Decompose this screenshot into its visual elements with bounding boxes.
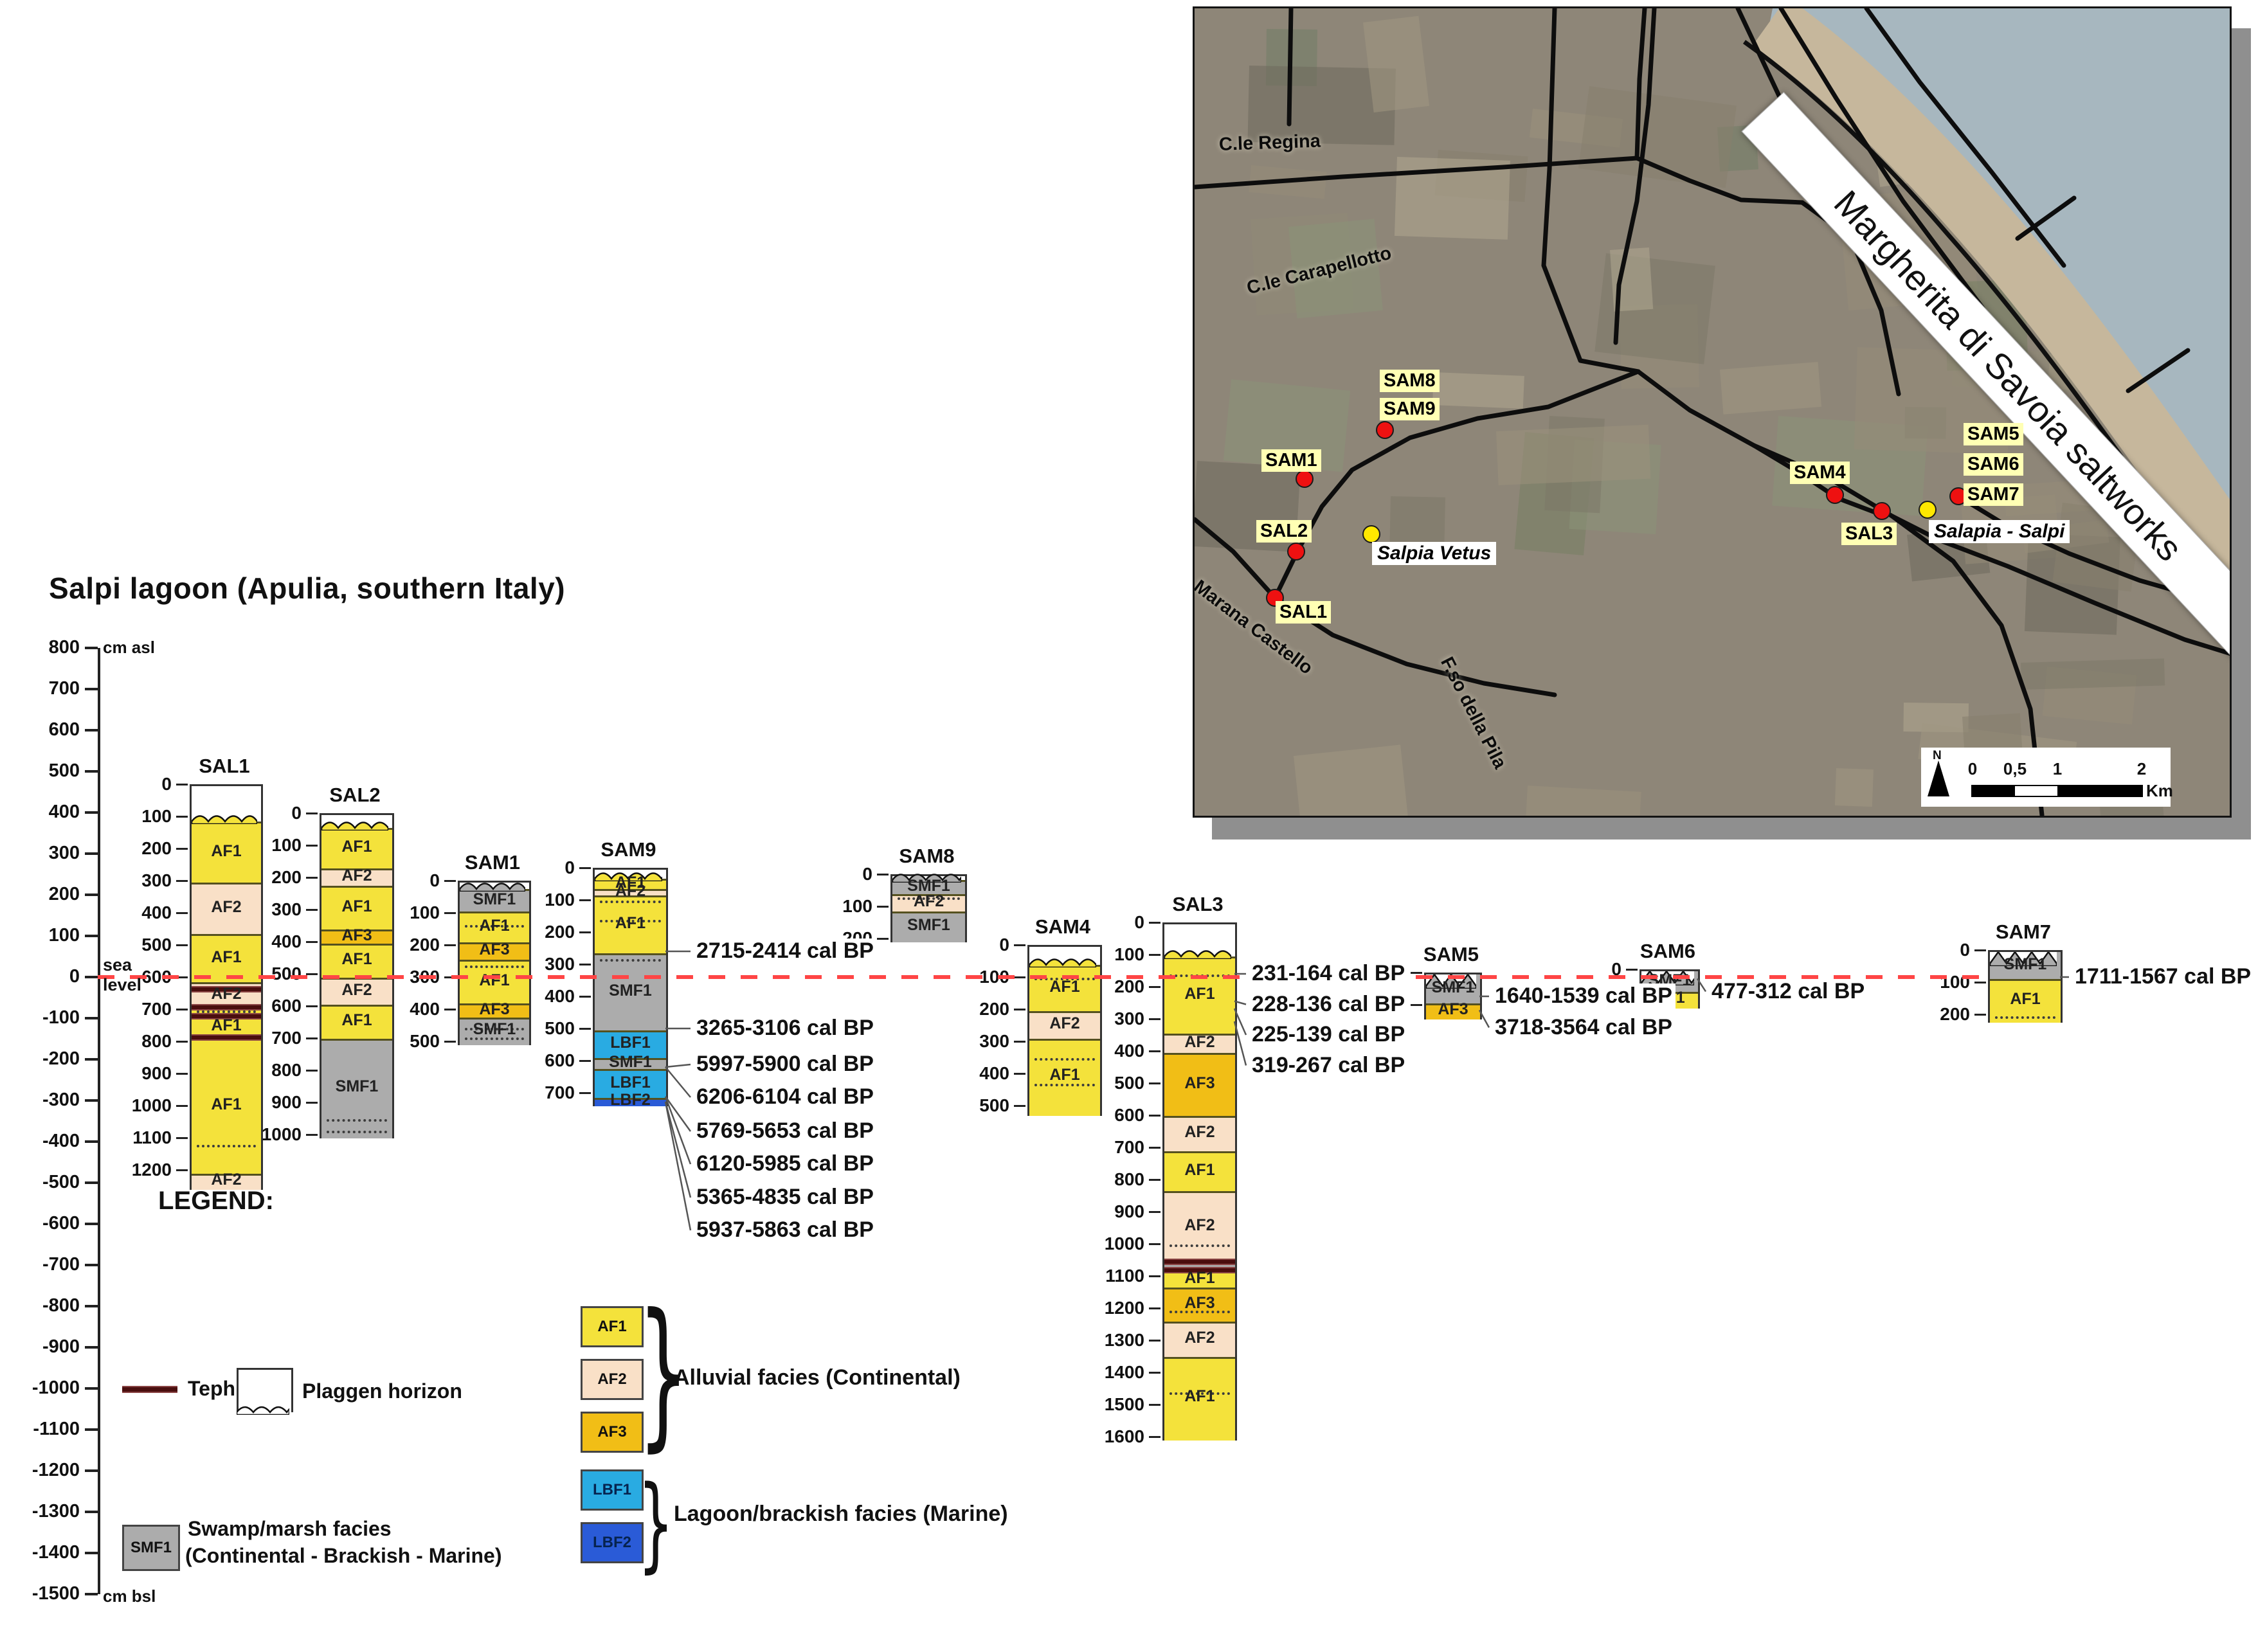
column-depth-tick [1149,1211,1161,1213]
axis-tick-label: -1500 [15,1583,80,1604]
facies-code-label: LBF2 [595,1091,666,1109]
column-depth-label: 600 [1087,1105,1144,1126]
column-depth-tick [1014,944,1025,946]
column-depth-label: 200 [1087,976,1144,997]
stratigraphy-figure: Salpi lagoon (Apulia, southern Italy) 80… [0,0,2258,1652]
axis-tick [85,893,98,896]
column-depth-tick [176,1041,188,1043]
axis-tick [85,1387,98,1390]
scalebar-number: 2 [2137,759,2146,779]
column-depth-label: 0 [815,864,872,884]
date-label: 6206-6104 cal BP [693,1084,877,1109]
date-label: 225-139 cal BP [1249,1022,1408,1047]
axis-tick-label: 300 [15,843,80,864]
figure-title: Salpi lagoon (Apulia, southern Italy) [49,571,565,606]
column-depth-label: 700 [517,1082,575,1103]
column-depth-tick [306,1070,318,1072]
legend-plaggen-swatch [237,1368,293,1412]
column-depth-label: 1500 [1087,1394,1144,1415]
date-label: 5937-5863 cal BP [693,1217,877,1243]
facies-code-label: AF2 [892,892,965,911]
axis-tick [85,1552,98,1554]
column-depth-label: 500 [382,1031,440,1052]
column-SAM7: SMF1AF1 [1988,950,2063,1023]
column-depth-label: 800 [1087,1169,1144,1190]
column-depth-tick [1149,1115,1161,1117]
column-depth-label: 1100 [1087,1266,1144,1286]
date-leader-line [665,1067,691,1097]
column-depth-tick [579,996,591,998]
map-label-SAM6: SAM6 [1964,453,2023,476]
column-depth-tick [579,899,591,901]
column-depth-label: 0 [952,935,1009,955]
facies-code-label: SMF1 [1426,978,1480,997]
axis-tick [85,811,98,814]
column-depth-label: 1400 [1087,1362,1144,1383]
column-depth-label: 500 [114,935,172,955]
axis-tick-label: -1100 [15,1419,80,1440]
date-label: 3718-3564 cal BP [1492,1015,1675,1040]
map-dot-SAM4 [1826,486,1844,504]
column-depth-label: 600 [244,996,302,1016]
axis-unit-bottom: cm bsl [103,1586,156,1606]
column-depth-label: 400 [952,1063,1009,1084]
dotted-line [327,1119,388,1122]
map-label-SAM1: SAM1 [1261,449,1321,472]
axis-tick [85,1223,98,1225]
column-depth-label: 900 [1087,1201,1144,1222]
legend-smf1-swatch: SMF1 [122,1525,180,1571]
scalebar-number: 1 [2053,759,2062,779]
column-depth-label: 1000 [114,1095,172,1116]
column-depth-label: 0 [382,870,440,891]
column-depth-label: 700 [1087,1137,1144,1158]
facies-code-label: AF3 [1426,1000,1480,1019]
axis-tick-label: -700 [15,1254,80,1275]
axis-tick-label: 700 [15,678,80,699]
axis-tick-label: -400 [15,1131,80,1152]
column-depth-tick [306,1134,318,1136]
column-depth-tick [1149,1404,1161,1406]
axis-tick-label: 600 [15,719,80,741]
facies-code-label: LBF1 [595,1034,666,1052]
facies-code-label: AF2 [1164,1216,1235,1235]
scalebar-unit: Km [2146,781,2173,801]
column-depth-label: 700 [244,1028,302,1048]
column-depth-tick [1149,1372,1161,1374]
facies-code-label: AF1 [1164,1269,1235,1288]
north-arrow [1928,760,1949,796]
axis-tick [85,1099,98,1102]
column-depth-tick [176,1009,188,1010]
column-depth-tick [1149,1050,1161,1052]
column-depth-tick [1014,1105,1025,1107]
column-depth-tick [1411,1004,1422,1006]
axis-tick-label: -1300 [15,1501,80,1522]
column-depth-label: 300 [244,899,302,920]
facies-code-label: AF2 [1164,1123,1235,1142]
column-depth-tick [1149,1147,1161,1149]
legend-lbf2-swatch: LBF2 [581,1522,644,1563]
map-dot-Salpia-Vetus [1362,525,1380,543]
column-header-SAL3: SAL3 [1134,893,1262,916]
column-depth-label: 600 [517,1050,575,1071]
column-depth-label: 1100 [114,1127,172,1148]
facies-code-label: AF1 [1164,985,1235,1003]
column-depth-tick [306,813,318,814]
column-depth-label: 0 [1912,940,1970,960]
axis-tick [85,935,98,937]
column-depth-tick [176,944,188,946]
column-depth-label: 200 [382,935,440,955]
column-depth-label: 500 [517,1018,575,1039]
date-leader-line [665,1097,691,1164]
column-header-SAM8: SAM8 [863,845,991,868]
axis-tick [85,1428,98,1431]
column-depth-tick [1626,969,1638,971]
column-depth-tick [306,909,318,911]
column-depth-tick [306,845,318,847]
facies-code-label: AF1 [1164,1387,1235,1406]
column-depth-label: 300 [114,870,172,891]
scalebar-seg-black-2 [2057,786,2142,796]
column-depth-label: 400 [114,902,172,923]
axis-tick [85,1469,98,1472]
facies-code-label: AF2 [595,882,666,901]
facies-code-label: SMF1 [321,1077,392,1096]
wavy-boundary [1164,947,1231,959]
column-depth-label: 100 [114,806,172,827]
column-depth-tick [1149,1179,1161,1181]
column-depth-tick [877,938,889,940]
dotted-line [1170,1244,1231,1247]
alluvial-brace: } [638,1279,689,1466]
column-depth-label: 500 [952,1095,1009,1116]
column-depth-tick [1014,1009,1025,1010]
sea-level-line [98,975,1988,979]
map-label-Salapia-Salpi: Salapia - Salpi [1929,520,2070,543]
facies-code-label: SMF1 [595,1053,666,1072]
legend-smf1-label-2: (Continental - Brackish - Marine) [185,1544,502,1568]
date-leader-line [665,1064,691,1067]
column-depth-tick [579,964,591,965]
column-depth-tick [176,880,188,882]
legend-af3-swatch: AF3 [581,1412,644,1453]
column-depth-tick [176,1073,188,1075]
legend-lbf1-swatch: LBF1 [581,1469,644,1511]
column-depth-tick [1149,986,1161,988]
facies-code-label: AF3 [1164,1294,1235,1313]
column-depth-label: 0 [244,803,302,823]
column-depth-label: 200 [1912,1004,1970,1025]
column-depth-label: 200 [244,867,302,888]
axis-tick-label: -1000 [15,1378,80,1399]
dotted-line [600,959,661,962]
axis-tick [85,1346,98,1349]
date-label: 477-312 cal BP [1708,979,1868,1004]
column-depth-label: 100 [815,896,872,917]
axis-tick [85,1264,98,1266]
map-dot-SAL2 [1287,543,1305,561]
column-depth-tick [1149,1436,1161,1438]
column-depth-tick [444,912,456,914]
axis-tick-label: 400 [15,802,80,823]
dotted-line [197,1145,257,1147]
legend-tephra-swatch [122,1387,177,1392]
scalebar-number: 0 [1968,759,1977,779]
column-depth-tick [306,941,318,943]
column-depth-tick [1149,1307,1161,1309]
legend-af2-swatch: AF2 [581,1359,644,1400]
axis-tick [85,1140,98,1143]
column-header-SAM6: SAM6 [1603,940,1732,963]
column-depth-tick [1974,1014,1986,1016]
map-label-SAM4: SAM4 [1790,462,1850,484]
map-label-SAL3: SAL3 [1841,523,1897,545]
axis-tick-label: -300 [15,1090,80,1111]
column-depth-tick [306,877,318,879]
column-depth-tick [1149,922,1161,924]
facies-code-label: AF1 [1990,990,2061,1009]
column-depth-tick [1149,1275,1161,1277]
axis-tick [85,729,98,732]
scalebar-number: 0,5 [2003,759,2027,779]
axis-tick [85,1593,98,1595]
date-leader-line [665,1097,691,1131]
facies-code-label: AF1 [1164,1161,1235,1180]
column-depth-tick [306,1037,318,1039]
column-depth-tick [579,1060,591,1062]
facies-code-label: LBF1 [595,1073,666,1092]
date-label: 6120-5985 cal BP [693,1151,877,1176]
column-depth-label: 200 [114,838,172,859]
column-depth-label: 400 [1087,1041,1144,1061]
dotted-line [1995,1016,2056,1019]
map-dot-SAM8-SAM9 [1376,421,1394,439]
column-depth-label: 900 [244,1092,302,1113]
map-dot-Salapia-Salpi [1919,501,1937,519]
column-depth-tick [877,906,889,908]
column-depth-label: 300 [517,954,575,974]
dotted-line [465,965,525,968]
map-scalebar: N00,512Km [1921,748,2171,807]
axis-tick [85,1511,98,1513]
legend-af1-swatch: AF1 [581,1306,644,1347]
column-depth-tick [176,1169,188,1171]
column-depth-label: 500 [244,964,302,984]
column-depth-tick [1149,1082,1161,1084]
column-depth-label: 100 [1087,944,1144,965]
date-label: 228-136 cal BP [1249,992,1408,1017]
column-depth-label: 200 [952,999,1009,1019]
date-label: 319-267 cal BP [1249,1053,1408,1078]
map-label-SAL2: SAL2 [1256,520,1312,543]
column-depth-tick [579,931,591,933]
column-depth-tick [579,1028,591,1030]
column-depth-label: 0 [517,857,575,878]
column-depth-tick [444,880,456,882]
column-depth-tick [444,1009,456,1010]
axis-tick-label: -500 [15,1172,80,1193]
date-label: 5769-5653 cal BP [693,1118,877,1144]
facies-code-label: AF3 [1164,1074,1235,1093]
axis-tick [85,1017,98,1019]
map-inset: Margherita di Savoia saltworksC.le Regin… [1193,6,2232,818]
axis-tick-label: 800 [15,637,80,658]
axis-tick-label: 100 [15,925,80,946]
facies-code-label: SMF1 [595,982,666,1000]
map-dot-SAL3 [1873,502,1891,520]
wavy-boundary [321,818,388,830]
column-depth-tick [176,848,188,850]
axis-tick [85,976,98,978]
axis-tick-label: 500 [15,760,80,782]
column-depth-tick [176,912,188,914]
column-depth-label: 800 [114,1031,172,1052]
date-label: 2715-2414 cal BP [693,938,877,964]
column-depth-tick [877,874,889,875]
date-leader-line [665,1102,691,1198]
facies-code-label: SMF1 [892,916,965,935]
column-depth-tick [176,1105,188,1107]
column-depth-label: 1200 [114,1160,172,1180]
column-depth-label: 1200 [1087,1298,1144,1318]
axis-tick-label: -1400 [15,1542,80,1563]
column-depth-label: 0 [114,774,172,795]
axis-tick-label: 200 [15,884,80,905]
axis-tick [85,1058,98,1061]
map-label-SAL1: SAL1 [1276,601,1331,624]
column-depth-tick [1149,1243,1161,1245]
facies-code-label: AF1 [595,914,666,933]
column-depth-label: 500 [1087,1073,1144,1093]
column-SAM5: SMF1AF3 [1424,973,1482,1020]
dotted-line [327,1131,388,1133]
legend-plaggen-label: Plaggen horizon [302,1379,462,1403]
axis-tick-label: 0 [15,966,80,987]
column-depth-label: 400 [244,931,302,952]
column-depth-label: 900 [114,1063,172,1084]
axis-tick-label: -200 [15,1048,80,1070]
dotted-line [600,901,661,903]
axis-tick-label: -800 [15,1295,80,1316]
axis-tick [85,688,98,690]
axis-tick [85,1305,98,1307]
column-depth-tick [176,784,188,786]
column-depth-label: 1000 [1087,1234,1144,1254]
column-depth-tick [1014,1073,1025,1075]
column-depth-label: 1000 [244,1124,302,1145]
column-SAM8: SMF1AF2SMF1 [890,874,967,942]
column-depth-label: 0 [1087,912,1144,933]
axis-tick [85,770,98,773]
column-header-SAM7: SAM7 [1959,920,2088,944]
column-depth-tick [176,816,188,818]
column-depth-tick [1974,949,1986,951]
date-label: 231-164 cal BP [1249,961,1408,986]
date-label: 5997-5900 cal BP [693,1052,877,1077]
legend-alluvial-label: Alluvial facies (Continental) [674,1365,961,1390]
axis-tick-label: -1200 [15,1460,80,1481]
map-dot-SAM1 [1296,470,1314,488]
elevation-axis [98,648,100,1594]
map-label-Salpia-Vetus: Salpia Vetus [1372,542,1496,565]
column-depth-label: 400 [517,986,575,1007]
column-depth-tick [579,1092,591,1094]
facies-code-label: SMF1 [1990,955,2061,974]
map-label-SAM7: SAM7 [1964,483,2023,506]
column-depth-tick [176,1137,188,1139]
facies-code-label: AF2 [1164,1329,1235,1347]
date-label: 1640-1539 cal BP [1492,983,1675,1009]
axis-tick-label: -100 [15,1007,80,1028]
sea-level-label-line2: level [103,975,141,995]
column-SAM9: AF1AF2AF1SMF1LBF1SMF1LBF1LBF2 [593,868,668,1106]
column-depth-label: 800 [244,1060,302,1081]
legend-smf1-label-1: Swamp/marsh facies [188,1517,392,1541]
column-depth-label: 100 [517,890,575,910]
column-header-SAL2: SAL2 [291,784,419,807]
column-depth-tick [1149,954,1161,956]
column-depth-tick [579,867,591,869]
column-depth-tick [1411,972,1422,974]
column-depth-label: 100 [244,835,302,856]
map-label-C-le-Regina: C.le Regina [1218,130,1321,155]
axis-unit-top: cm asl [103,638,155,658]
column-depth-label: 300 [1087,1009,1144,1029]
column-depth-label: 100 [382,902,440,923]
column-depth-label: 1600 [1087,1426,1144,1447]
map-label-SAM5: SAM5 [1964,423,2023,445]
column-depth-label: 300 [952,1031,1009,1052]
facies-code-label: AF2 [192,1171,261,1189]
column-depth-label: 200 [517,922,575,942]
column-depth-tick [1149,1340,1161,1342]
axis-tick [85,852,98,855]
date-label: 5365-4835 cal BP [693,1185,877,1210]
column-depth-label: 700 [114,999,172,1019]
column-depth-tick [1974,982,1986,983]
legend-heading: LEGEND: [158,1187,274,1216]
column-depth-tick [306,1005,318,1007]
facies-code-label: AF2 [1164,1033,1235,1052]
column-depth-label: 400 [382,999,440,1019]
column-depth-tick [444,944,456,946]
date-label: 1711-1567 cal BP [2072,964,2254,989]
legend-lagoon-label: Lagoon/brackish facies (Marine) [674,1502,1008,1527]
scalebar-seg-black-1 [1973,786,2015,796]
sea-level-label: sealevel [103,955,141,995]
column-depth-tick [1149,1018,1161,1020]
column-depth-tick [1014,1041,1025,1043]
column-depth-tick [444,1041,456,1043]
column-header-SAM9: SAM9 [564,838,693,861]
column-depth-tick [306,1102,318,1104]
axis-tick [85,647,98,649]
date-label: 3265-3106 cal BP [693,1016,877,1041]
map-label-SAM8: SAM8 [1380,370,1440,392]
column-depth-label: 1300 [1087,1330,1144,1351]
tephra-line [1164,1260,1235,1264]
facies-code-label: AF1 [321,838,392,856]
column-header-SAL1: SAL1 [160,755,289,778]
sea-level-label-line1: sea [103,955,141,975]
axis-tick [85,1181,98,1184]
axis-tick-label: -600 [15,1213,80,1234]
map-label-SAM9: SAM9 [1380,398,1440,420]
column-SAL3: AF1AF2AF3AF2AF1AF2AF1AF3AF2AF1 [1162,922,1237,1441]
axis-tick-label: -900 [15,1336,80,1358]
